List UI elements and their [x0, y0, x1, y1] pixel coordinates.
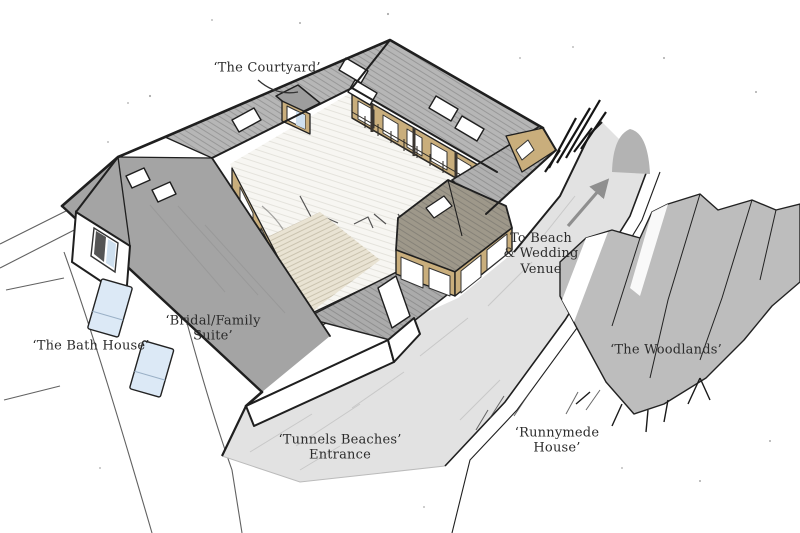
label-bridal-family-suite: ‘Bridal/Family Suite’ — [165, 314, 260, 345]
label-tunnels-beaches-entrance: ‘Tunnels Beaches’ Entrance — [278, 433, 401, 464]
label-the-woodlands: ‘The Woodlands’ — [610, 342, 722, 357]
label-the-courtyard: ‘The Courtyard’ — [213, 60, 320, 75]
label-to-beach-wedding-venue: To Beach & Wedding Venue — [504, 231, 579, 277]
tunnel-entrance-arch — [612, 129, 650, 174]
label-runnymede-house: ‘Runnymede House’ — [515, 426, 599, 457]
site-sketch-canvas: ‘The Courtyard’ ‘The Bath House’ ‘Bridal… — [0, 0, 800, 533]
label-the-bath-house: ‘The Bath House’ — [32, 338, 149, 353]
